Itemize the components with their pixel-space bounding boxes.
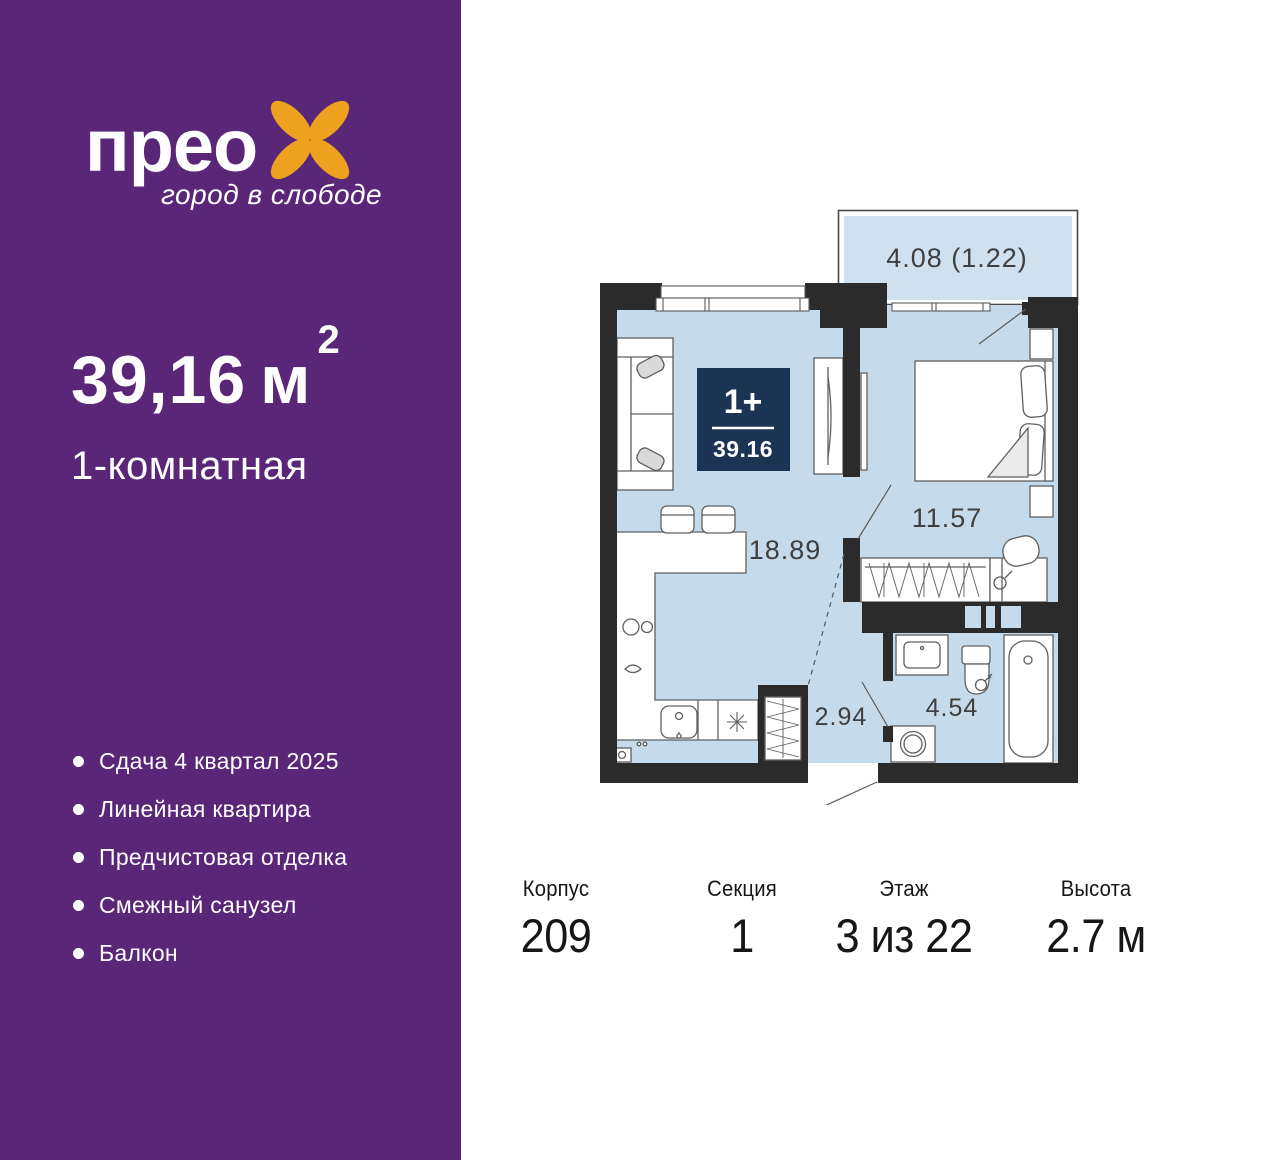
bullet-icon [73, 804, 84, 815]
nightstand [1030, 486, 1053, 517]
brand-name: прео [85, 109, 257, 183]
nightstand [1030, 329, 1053, 359]
wall-glass-slots [965, 606, 1021, 628]
apartment-type: 1-комнатная [71, 444, 308, 489]
spec-section: Секция 1 [707, 876, 777, 963]
area-badge: 1+ 39.16 [697, 368, 790, 471]
kitchen-sink [661, 706, 697, 738]
floor-plan-svg: 1+ 39.16 4.08 (1.22) 18.89 11.57 2.94 4.… [595, 205, 1085, 805]
spec-label: Корпус [521, 876, 592, 902]
apartment-area: 39,16м2 [71, 346, 335, 414]
spec-value: 3 из 22 [836, 908, 973, 963]
logo: прео город в слободе [85, 93, 405, 211]
sofa [617, 338, 673, 490]
bathtub [1004, 635, 1053, 763]
floor-plan: 1+ 39.16 4.08 (1.22) 18.89 11.57 2.94 4.… [595, 205, 1085, 805]
spec-label: Этаж [836, 876, 973, 902]
bullet-icon [73, 948, 84, 959]
sidebar: прео город в слободе 39,16м2 1-комнатная… [0, 0, 461, 1160]
bedroom-closet [861, 558, 990, 602]
bedroom-window [892, 303, 990, 311]
room-label-living: 18.89 [749, 535, 822, 565]
area-unit: м [260, 342, 311, 418]
badge-rooms: 1+ [724, 383, 763, 421]
living-window [656, 286, 809, 311]
flower-icon [263, 93, 357, 187]
spec-label: Высота [1046, 876, 1146, 902]
room-label-balcony: 4.08 (1.22) [886, 243, 1028, 273]
entry-door-swing [820, 782, 877, 805]
bullet-icon [73, 852, 84, 863]
bathroom-vanity [896, 635, 948, 675]
brand-tagline: город в слободе [161, 179, 405, 211]
spec-height: Высота 2.7 м [1046, 876, 1146, 963]
spec-building: Корпус 209 [521, 876, 592, 963]
feature-item: Балкон [73, 940, 347, 967]
room-label-bathroom: 4.54 [926, 694, 979, 722]
room-label-hallway: 2.94 [815, 703, 868, 731]
feature-item: Сдача 4 квартал 2025 [73, 748, 347, 775]
badge-area: 39.16 [713, 436, 773, 462]
spec-value: 209 [521, 908, 592, 963]
area-value: 39,16 [71, 342, 246, 418]
feature-item: Предчистовая отделка [73, 844, 347, 871]
bed [915, 361, 1053, 481]
spec-floor: Этаж 3 из 22 [836, 876, 973, 963]
room-label-bedroom: 11.57 [912, 503, 983, 533]
feature-item: Линейная квартира [73, 796, 347, 823]
area-superscript: 2 [317, 318, 340, 362]
washing-machine [891, 726, 935, 762]
entry-closet [758, 685, 808, 763]
spec-value: 2.7 м [1046, 908, 1146, 963]
feature-item: Смежный санузел [73, 892, 347, 919]
spec-label: Секция [707, 876, 777, 902]
spec-value: 1 [707, 908, 777, 963]
bullet-icon [73, 900, 84, 911]
features-list: Сдача 4 квартал 2025 Линейная квартира П… [73, 748, 347, 988]
bullet-icon [73, 756, 84, 767]
hob-star-icon [727, 712, 747, 732]
